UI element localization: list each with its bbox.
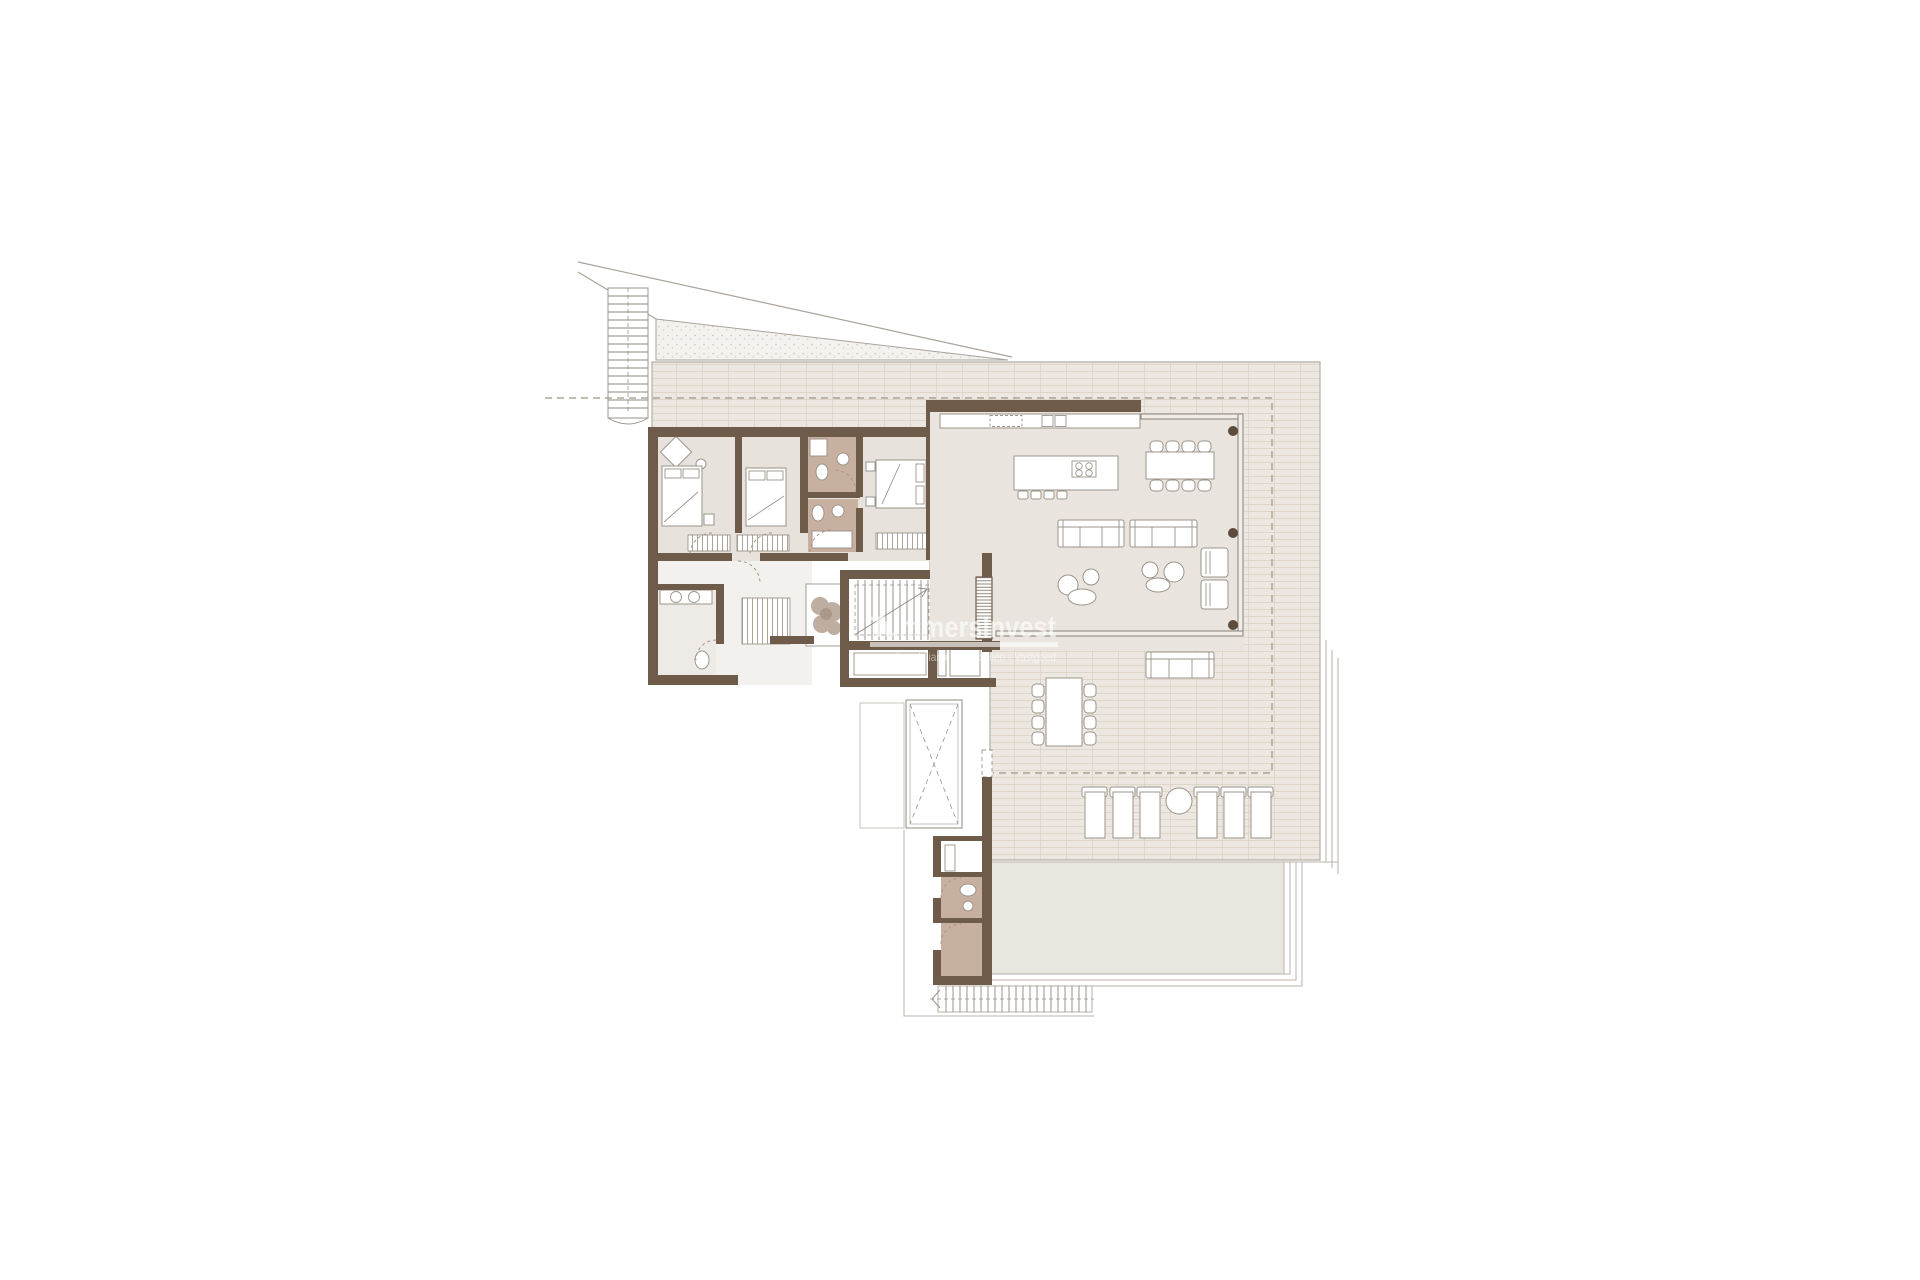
bathroom-2 [808, 499, 858, 552]
bed-1 [662, 466, 702, 526]
column-icon [1228, 528, 1238, 538]
bedroom-3 [866, 460, 930, 549]
nightstand [866, 497, 875, 506]
watermark-tagline: Inmobiliaria - Immobilien - Vastgoed [896, 650, 1056, 664]
outdoor-dining-table [1046, 678, 1082, 746]
side-steps [608, 288, 648, 424]
wall-opening-dashed [982, 750, 992, 777]
watermark-underline [870, 642, 1058, 647]
sun-lounger [1194, 787, 1219, 838]
vanity-counter [660, 590, 712, 604]
bathroom-1 [808, 437, 858, 493]
utility-bathroom [658, 588, 716, 676]
watermark: TummersInvest Inmobiliaria - Immobilien … [870, 611, 1058, 664]
side-steps-landing [608, 418, 648, 424]
outdoor-sofa [1146, 652, 1214, 678]
sink-2 [832, 505, 844, 517]
column-icon [1228, 426, 1238, 436]
wardrobe-3 [876, 533, 930, 549]
sun-lounger [1110, 787, 1135, 838]
sink-5 [963, 901, 973, 911]
kitchen-wall [926, 400, 1141, 412]
nightstand [866, 462, 875, 471]
lower-closet [941, 841, 982, 874]
sun-lounger [1137, 787, 1162, 838]
shower-2 [812, 531, 852, 548]
sofa-right [1130, 520, 1197, 547]
sofa-left [1058, 520, 1124, 547]
glass-wall-east [1238, 414, 1243, 636]
bed-3 [876, 460, 926, 508]
sink-1 [837, 453, 849, 465]
sun-lounger [1082, 787, 1107, 838]
stippled-verge [656, 319, 1008, 360]
lower-east-wall [982, 777, 992, 985]
toilet-1 [816, 464, 828, 480]
round-side-table [1166, 788, 1192, 814]
glass-wall-north [1141, 414, 1243, 419]
sun-lounger [1248, 787, 1273, 838]
outdoor-dining [1032, 678, 1096, 746]
nightstand [704, 514, 714, 525]
watermark-brand: TummersInvest [870, 611, 1056, 644]
wardrobe-2 [737, 535, 789, 551]
wardrobe-1 [688, 535, 730, 551]
sun-lounger [1221, 787, 1246, 838]
floor-plan-page: TummersInvest Inmobiliaria - Immobilien … [0, 0, 1920, 1280]
lower-room [941, 922, 982, 980]
bed-2 [746, 468, 786, 526]
toilet-2 [812, 505, 824, 521]
toilet-5 [960, 884, 976, 896]
kitchen-counter [940, 414, 1140, 428]
floor-plan-drawing: TummersInvest Inmobiliaria - Immobilien … [0, 0, 1920, 1280]
shower-1 [810, 439, 827, 456]
lower-terrace [988, 862, 1302, 986]
column-icon [1228, 620, 1238, 630]
lower-bathroom [941, 876, 982, 920]
elevator-void [860, 700, 962, 828]
